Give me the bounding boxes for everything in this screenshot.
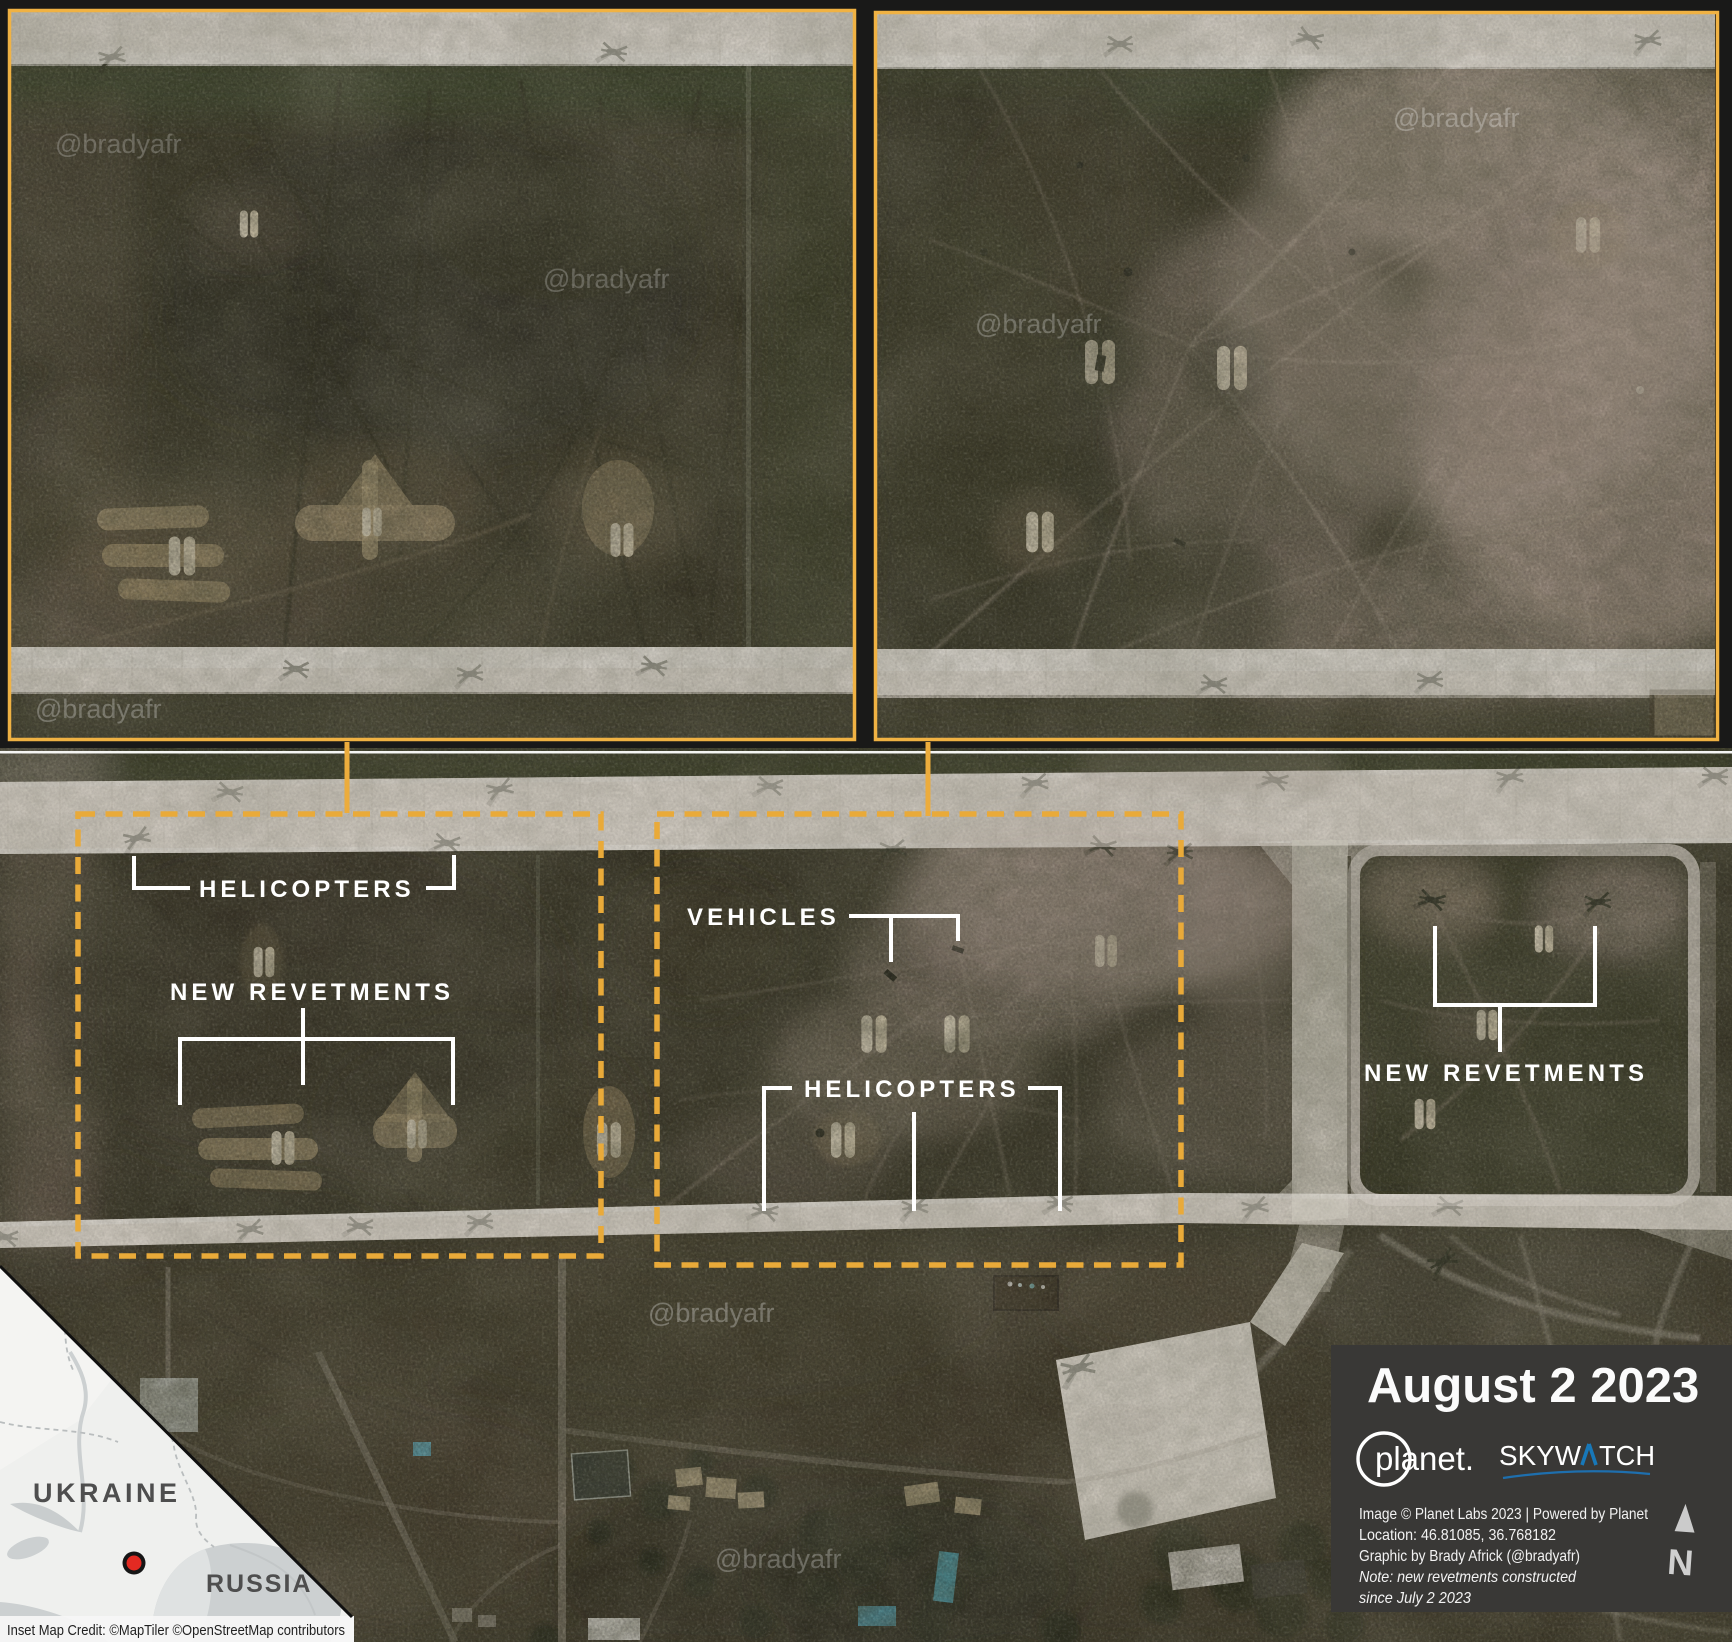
- svg-text:UKRAINE: UKRAINE: [33, 1478, 181, 1508]
- svg-text:@bradyafr: @bradyafr: [543, 264, 669, 294]
- svg-text:Inset Map Credit: ©MapTiler ©O: Inset Map Credit: ©MapTiler ©OpenStreetM…: [7, 1623, 345, 1639]
- svg-text:N: N: [1666, 1541, 1695, 1584]
- svg-text:NEW REVETMENTS: NEW REVETMENTS: [1364, 1060, 1648, 1087]
- svg-text:RUSSIA: RUSSIA: [206, 1570, 312, 1598]
- svg-text:SKYW: SKYW: [1499, 1440, 1582, 1471]
- svg-text:planet.: planet.: [1375, 1440, 1474, 1477]
- svg-text:@bradyafr: @bradyafr: [55, 129, 181, 159]
- svg-text:VEHICLES: VEHICLES: [687, 904, 840, 931]
- svg-text:@bradyafr: @bradyafr: [715, 1544, 841, 1574]
- svg-text:Graphic by Brady Africk (@brad: Graphic by Brady Africk (@bradyafr): [1359, 1548, 1580, 1565]
- svg-text:@bradyafr: @bradyafr: [1393, 103, 1519, 133]
- svg-text:Note: new revetments construct: Note: new revetments constructed: [1359, 1569, 1577, 1586]
- svg-text:@bradyafr: @bradyafr: [35, 694, 161, 724]
- svg-text:NEW REVETMENTS: NEW REVETMENTS: [170, 979, 454, 1006]
- svg-text:Image © Planet Labs 2023 | Pow: Image © Planet Labs 2023 | Powered by Pl…: [1359, 1506, 1648, 1523]
- svg-text:since July 2 2023: since July 2 2023: [1359, 1590, 1471, 1607]
- svg-text:August 2 2023: August 2 2023: [1367, 1359, 1699, 1413]
- svg-text:HELICOPTERS: HELICOPTERS: [804, 1076, 1020, 1103]
- svg-text:TCH: TCH: [1599, 1440, 1655, 1471]
- svg-text:@bradyafr: @bradyafr: [975, 309, 1101, 339]
- svg-text:Location: 46.81085, 36.768182: Location: 46.81085, 36.768182: [1359, 1527, 1556, 1544]
- svg-text:@bradyafr: @bradyafr: [648, 1298, 774, 1328]
- svg-text:HELICOPTERS: HELICOPTERS: [199, 876, 415, 903]
